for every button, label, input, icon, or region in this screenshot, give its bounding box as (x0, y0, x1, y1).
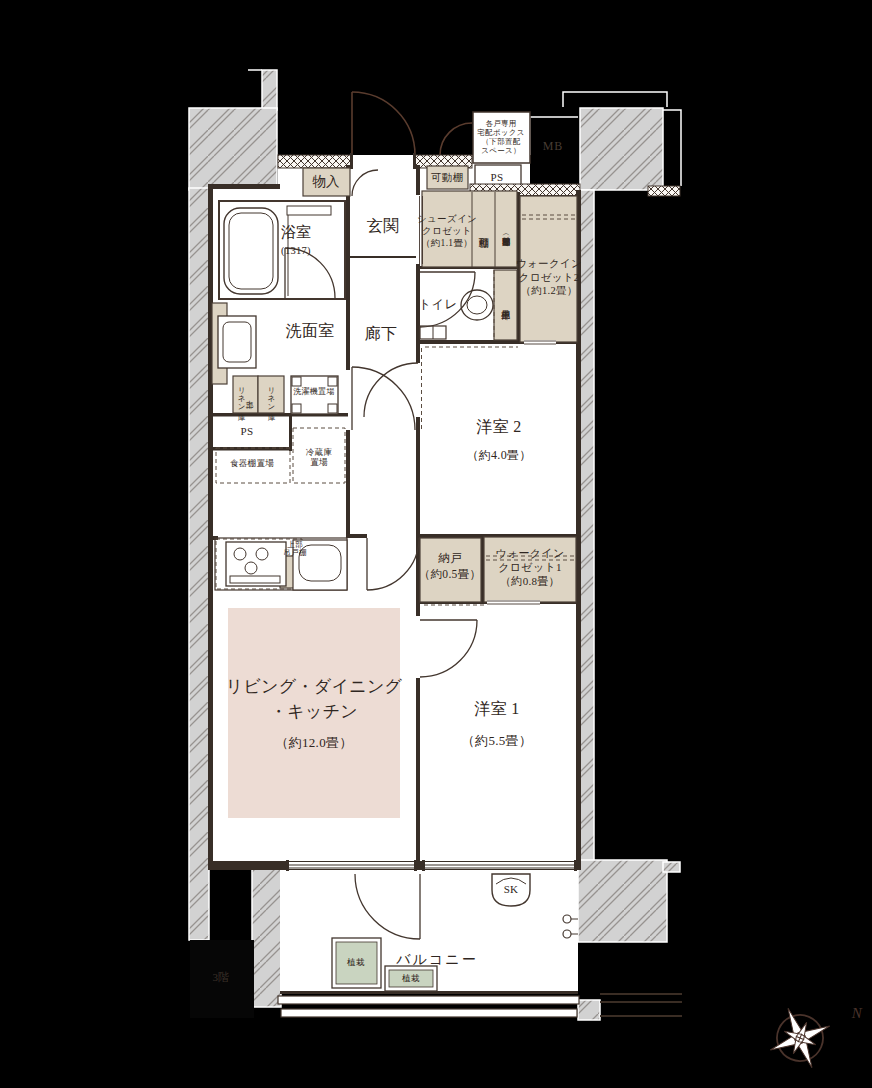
label-linen-upper: 上部 リネン庫 (237, 381, 253, 407)
entrance-door (352, 92, 472, 155)
label-ps-left: PS (241, 424, 254, 438)
label-bedroom1: 洋室 1 (474, 699, 519, 720)
compass-icon (758, 996, 841, 1079)
label-bathroom-size: (1317) (281, 244, 311, 258)
label-cupboard: 食器棚置場 (230, 458, 274, 469)
label-washroom: 洗面室 (286, 321, 335, 342)
label-washer: 洗濯機置場 (293, 387, 335, 397)
site-lines (600, 994, 682, 1016)
floorplan-page: 各戸専用 宅配ボックス （下部置配 スペース） MB PS 可動棚 物入 玄関 … (0, 0, 872, 1088)
label-delivery-box: 各戸専用 宅配ボックス （下部置配 スペース） (477, 119, 525, 155)
label-hallway: 廊下 (365, 324, 398, 345)
label-upper-cabinet-kitchen: 上部 吊戸棚 (283, 541, 306, 558)
label-mb: MB (543, 139, 564, 155)
label-ps-top: PS (491, 170, 504, 184)
label-nando: 納戸 （約0.5畳） (419, 551, 481, 582)
kitchen-fixtures (215, 538, 347, 590)
label-bedroom1-size: （約5.5畳） (462, 733, 532, 750)
label-bathroom: 浴室 (281, 223, 312, 243)
label-floor-indicator: 3階 (212, 970, 229, 984)
label-toilet: トイレ (418, 296, 457, 312)
label-wic2: ウォークイン クロゼット2 （約1.2畳） (516, 257, 582, 298)
label-balcony: バルコニー (396, 951, 477, 969)
label-bedroom2: 洋室 2 (476, 417, 521, 438)
label-fridge: 冷蔵庫 置場 (306, 448, 332, 468)
label-kadodana-top: 可動棚 (431, 171, 463, 185)
label-linen: リネン庫 (267, 381, 275, 407)
floorplan-graphic (0, 0, 872, 1088)
label-ldk-size: （約12.0畳） (275, 735, 352, 752)
label-monoire: 物入 (312, 173, 340, 191)
label-bedroom2-size: （約4.0畳） (466, 448, 531, 464)
label-sk: SK (504, 882, 519, 896)
label-ldk: リビング・ダイニング ・キッチン (226, 675, 403, 724)
balcony-railing (278, 996, 579, 1017)
label-genkan: 玄関 (367, 216, 400, 237)
label-north: N (852, 1004, 862, 1024)
label-plant-1: 植栽 (347, 957, 365, 968)
label-sic: シューズイン クロゼット （約1.1畳） (417, 214, 477, 250)
label-wic1: ウォークイン クロゼット1 （約0.8畳） (495, 547, 564, 588)
label-plant-2: 植栽 (402, 973, 420, 984)
